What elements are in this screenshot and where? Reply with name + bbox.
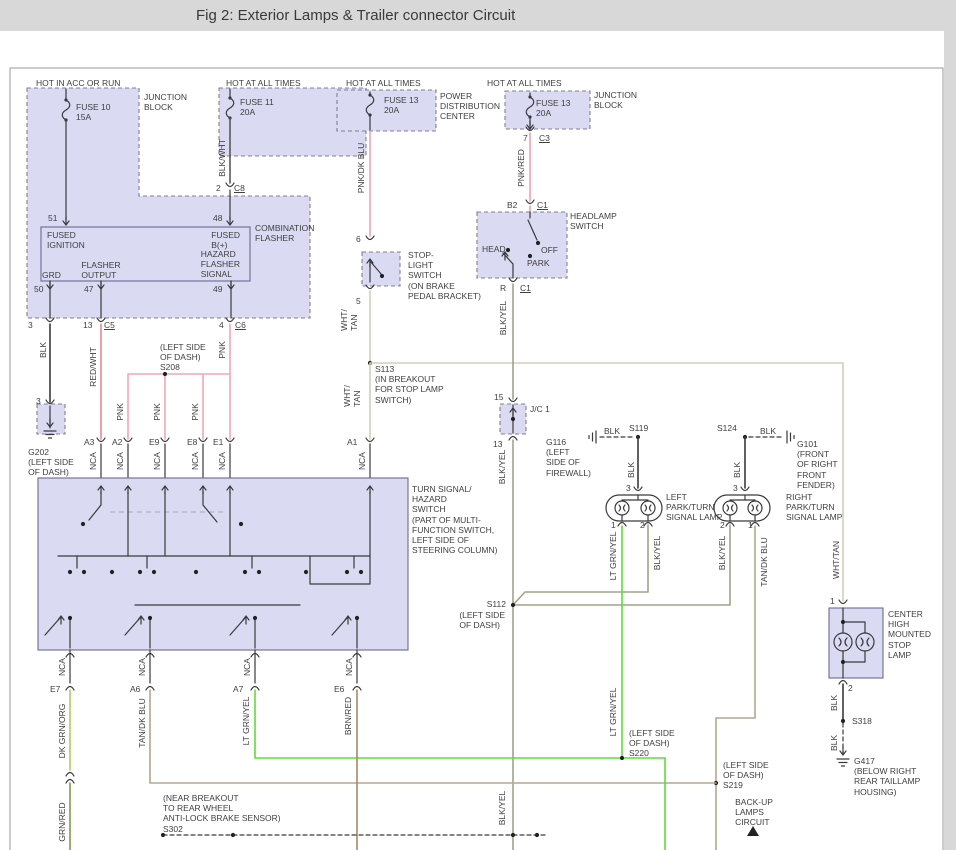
ground-g417: G417 (BELOW RIGHT REAR TAILLAMP HOUSING) (854, 756, 920, 797)
pin-4-c6: 4 (219, 320, 224, 330)
pin-1-left-lamp: 1 (611, 520, 616, 530)
wire-blk-s124: BLK (760, 426, 776, 436)
pin-7: 7 (523, 133, 528, 143)
pin-2: 2 (216, 183, 221, 193)
wire-blk-yel-bottom: BLK/YEL (497, 791, 507, 826)
combination-flasher: COMBINATION FLASHER (255, 223, 314, 243)
hot-in-acc-or-run: HOT IN ACC OR RUN (36, 78, 120, 88)
park-position: PARK (527, 258, 550, 268)
conn-e9: E9 (149, 437, 159, 447)
fuse-13-pdc: FUSE 13 20A (384, 95, 419, 115)
wire-nca-a7: NCA (242, 658, 252, 676)
junction-connector-1: J/C 1 (530, 404, 550, 414)
fuse-10: FUSE 10 15A (76, 102, 111, 122)
wire-nca-e7: NCA (57, 658, 67, 676)
conn-e8: E8 (187, 437, 197, 447)
left-park-turn-lamp: LEFT PARK/TURN SIGNAL LAMP (666, 492, 722, 523)
splice-s112-loc: (LEFT SIDE OF DASH) (459, 610, 505, 630)
hot-at-all-times-1: HOT AT ALL TIMES (226, 78, 301, 88)
pin-13-c5: 13 (83, 320, 92, 330)
wire-pnk-red: PNK/RED (516, 149, 526, 187)
wire-blk-left-lamp: BLK (626, 462, 636, 478)
wire-nca-a3: NCA (88, 452, 98, 470)
wire-wht-tan-a1: WHT/ TAN (342, 385, 362, 407)
junction-block-2: JUNCTION BLOCK (594, 90, 637, 110)
splice-s113: S113 (IN BREAKOUT FOR STOP LAMP SWITCH) (375, 364, 444, 405)
wire-blk-g202: BLK (38, 342, 48, 358)
center-high-mounted-stop-lamp: CENTER HIGH MOUNTED STOP LAMP (888, 609, 931, 660)
power-distribution-center: POWER DISTRIBUTION CENTER (440, 91, 500, 122)
ground-g116: G116 (LEFT SIDE OF FIREWALL) (546, 437, 591, 478)
splice-s302: (NEAR BREAKOUT TO REAR WHEEL ANTI-LOCK B… (163, 793, 281, 834)
wire-blk-s119: BLK (604, 426, 620, 436)
pin-50: 50 (34, 284, 43, 294)
wire-nca-a1: NCA (357, 452, 367, 470)
wire-tan-dk-blu-a6: TAN/DK BLU (137, 698, 147, 747)
wire-blk-yel-right: BLK/YEL (717, 536, 727, 571)
wire-pnk-e8: PNK (190, 403, 200, 420)
wire-blk-yel-top: BLK/YEL (498, 301, 508, 336)
conn-c5: C5 (104, 320, 115, 330)
pin-b2: B2 (507, 200, 517, 210)
splice-s220: (LEFT SIDE OF DASH) S220 (629, 728, 675, 759)
wire-pnk-c6: PNK (217, 341, 227, 358)
g202-outline (37, 404, 65, 434)
turn-signal-hazard-switch-box (38, 478, 408, 650)
stop-light-switch-outline (362, 252, 400, 286)
grd: GRD (42, 270, 61, 280)
splice-s219: (LEFT SIDE OF DASH) S219 (723, 760, 769, 791)
wire-blk-g417: BLK (829, 735, 839, 751)
conn-c1-bottom: C1 (520, 283, 531, 293)
pin-1-chmsl: 1 (830, 596, 835, 606)
conn-a3: A3 (84, 437, 94, 447)
wire-nca-e9: NCA (152, 452, 162, 470)
conn-c1-top: C1 (537, 200, 548, 210)
ground-g101: G101 (FRONT OF RIGHT FRONT FENDER) (797, 439, 838, 490)
wire-pnk-e9: PNK (152, 403, 162, 420)
pin-2-chmsl: 2 (848, 683, 853, 693)
page: { "header": { "title": "Fig 2: Exterior … (0, 0, 956, 850)
pin-13-jc1: 13 (493, 439, 502, 449)
splice-s112: S112 (487, 599, 506, 609)
flasher-output: FLASHER OUTPUT (81, 260, 120, 280)
pin-3-flasher: 3 (28, 320, 33, 330)
backup-lamps-circuit: BACK-UP LAMPS CIRCUIT (735, 797, 773, 828)
wire-nca-e1: NCA (217, 452, 227, 470)
figure-title: Fig 2: Exterior Lamps & Trailer connecto… (196, 7, 515, 25)
conn-a2: A2 (112, 437, 122, 447)
conn-a1: A1 (347, 437, 357, 447)
wire-pnk-dk-blu: PNK/DK BLU (356, 143, 366, 194)
wire-nca-e8: NCA (190, 452, 200, 470)
pin-15: 15 (494, 392, 503, 402)
wire-red-wht: RED/WHT (88, 347, 98, 387)
hot-at-all-times-3: HOT AT ALL TIMES (487, 78, 562, 88)
headlamp-switch: HEADLAMP SWITCH (570, 211, 617, 231)
wire-blk-yel-mid: BLK/YEL (497, 450, 507, 485)
off-position: OFF (541, 245, 558, 255)
conn-e7: E7 (50, 684, 60, 694)
conn-c3: C3 (539, 133, 550, 143)
fused-ignition: FUSED IGNITION (47, 230, 85, 250)
pin-1-right-lamp: 1 (748, 520, 753, 530)
fused-b-plus: FUSED B(+) (211, 230, 240, 250)
wire-nca-a6: NCA (137, 658, 147, 676)
pin-2-left-lamp: 2 (640, 520, 645, 530)
wire-brn-red: BRN/RED (343, 697, 353, 735)
stop-light-switch: STOP- LIGHT SWITCH (ON BRAKE PEDAL BRACK… (408, 250, 481, 301)
pin-3-g202: 3 (36, 396, 41, 406)
conn-a7: A7 (233, 684, 243, 694)
ground-g202: G202 (LEFT SIDE OF DASH) (28, 447, 74, 478)
conn-e6: E6 (334, 684, 344, 694)
wire-lt-grn-yel-a7: LT GRN/YEL (241, 697, 251, 746)
right-park-turn-lamp: RIGHT PARK/TURN SIGNAL LAMP (786, 492, 842, 523)
wire-wht-tan-chmsl: WHT/TAN (831, 541, 841, 579)
hot-at-all-times-2: HOT AT ALL TIMES (346, 78, 421, 88)
splice-s318: S318 (852, 716, 872, 726)
conn-c8: C8 (234, 183, 245, 193)
conn-e1: E1 (213, 437, 223, 447)
wire-blk-right-lamp: BLK (732, 462, 742, 478)
head-position: HEAD (482, 244, 506, 254)
wire-nca-a2: NCA (115, 452, 125, 470)
turn-signal-hazard-switch: TURN SIGNAL/ HAZARD SWITCH (PART OF MULT… (412, 484, 497, 555)
splice-s119: S119 (629, 423, 648, 433)
wire-lt-grn-yel-mid: LT GRN/YEL (608, 688, 618, 737)
pin-6: 6 (356, 234, 361, 244)
wire-pnk-a2: PNK (115, 403, 125, 420)
pin-5: 5 (356, 296, 361, 306)
wire-grn-red: GRN/RED (57, 802, 67, 841)
pin-3-left-lamp: 3 (626, 483, 631, 493)
pin-51: 51 (48, 213, 57, 223)
pin-r: R (500, 283, 506, 293)
pin-2-right-lamp: 2 (720, 520, 725, 530)
pin-49: 49 (213, 284, 222, 294)
conn-c6: C6 (235, 320, 246, 330)
wire-blk-yel-left: BLK/YEL (652, 536, 662, 571)
splice-s208: (LEFT SIDE OF DASH) S208 (160, 342, 206, 373)
pin-3-right-lamp: 3 (733, 483, 738, 493)
wire-nca-e6: NCA (344, 658, 354, 676)
wire-tan-dk-blu-right: TAN/DK BLU (759, 537, 769, 586)
junction-block-1: JUNCTION BLOCK (144, 92, 187, 112)
wire-blk-chmsl: BLK (829, 695, 839, 711)
wire-dk-grn-org: DK GRN/ORG (57, 704, 67, 759)
wire-lt-grn-yel-left: LT GRN/YEL (608, 532, 618, 581)
fuse-13-jb: FUSE 13 20A (536, 98, 571, 118)
fuse-11: FUSE 11 20A (240, 97, 274, 117)
pin-48: 48 (213, 213, 222, 223)
pin-47: 47 (84, 284, 93, 294)
hazard-flasher-signal: HAZARD FLASHER SIGNAL (201, 249, 240, 280)
wire-blk-wht: BLK/WHT (217, 139, 227, 177)
splice-s124: S124 (717, 423, 737, 433)
wire-wht-tan-5: WHT/ TAN (339, 309, 359, 331)
conn-a6: A6 (130, 684, 140, 694)
